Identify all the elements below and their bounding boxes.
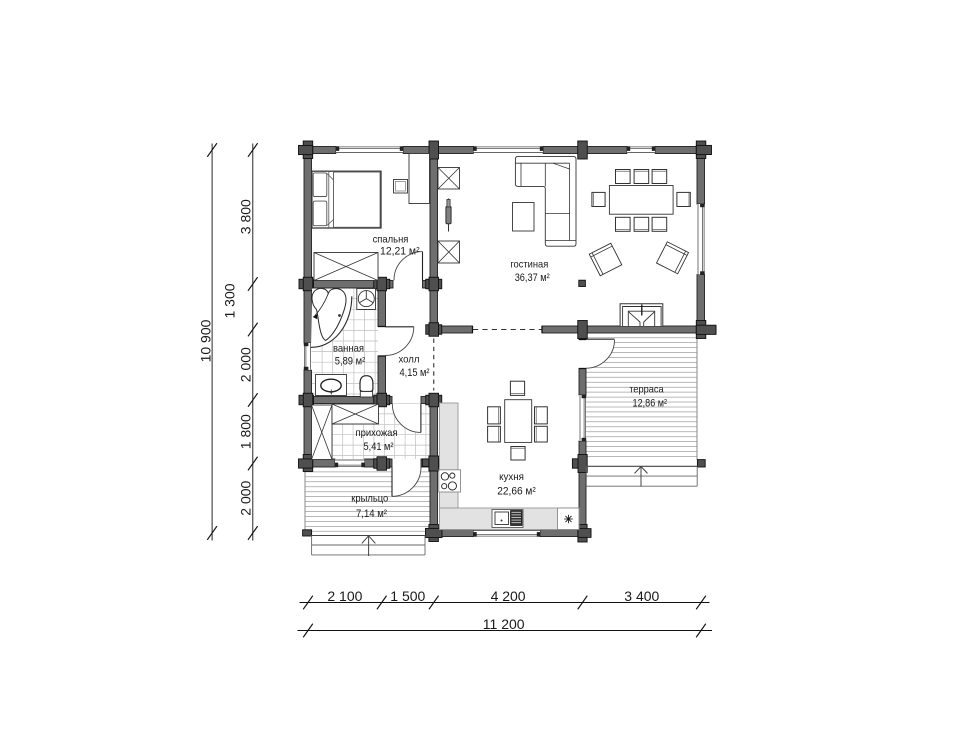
svg-text:2 000: 2 000 (237, 480, 253, 515)
svg-text:1 800: 1 800 (237, 414, 253, 449)
svg-text:3 400: 3 400 (624, 588, 659, 604)
svg-text:5,41 м²: 5,41 м² (364, 441, 394, 453)
svg-text:терраса: терраса (629, 385, 664, 396)
svg-text:3 800: 3 800 (237, 199, 253, 234)
svg-text:гостиная: гостиная (510, 260, 548, 271)
svg-text:12,86 м²: 12,86 м² (633, 398, 668, 410)
svg-text:спальня: спальня (373, 235, 409, 246)
svg-text:12,21 м²: 12,21 м² (380, 246, 420, 258)
svg-text:4 200: 4 200 (491, 588, 526, 604)
svg-text:22,66 м²: 22,66 м² (497, 486, 536, 498)
svg-text:1 500: 1 500 (390, 588, 425, 604)
svg-text:прихожая: прихожая (356, 428, 398, 439)
svg-text:36,37 м²: 36,37 м² (515, 272, 550, 284)
svg-text:10 900: 10 900 (197, 319, 213, 362)
svg-text:11 200: 11 200 (483, 616, 525, 632)
svg-text:4,15 м²: 4,15 м² (400, 367, 430, 379)
svg-text:2 000: 2 000 (237, 347, 253, 382)
svg-text:холл: холл (399, 355, 420, 366)
svg-text:ванная: ванная (333, 344, 364, 355)
svg-text:2 100: 2 100 (327, 588, 362, 604)
svg-text:7,14 м²: 7,14 м² (356, 508, 387, 520)
svg-text:крыльцо: крыльцо (351, 494, 388, 505)
svg-text:кухня: кухня (499, 472, 524, 483)
svg-text:1 300: 1 300 (221, 283, 237, 318)
svg-text:5,89 м²: 5,89 м² (335, 356, 366, 368)
